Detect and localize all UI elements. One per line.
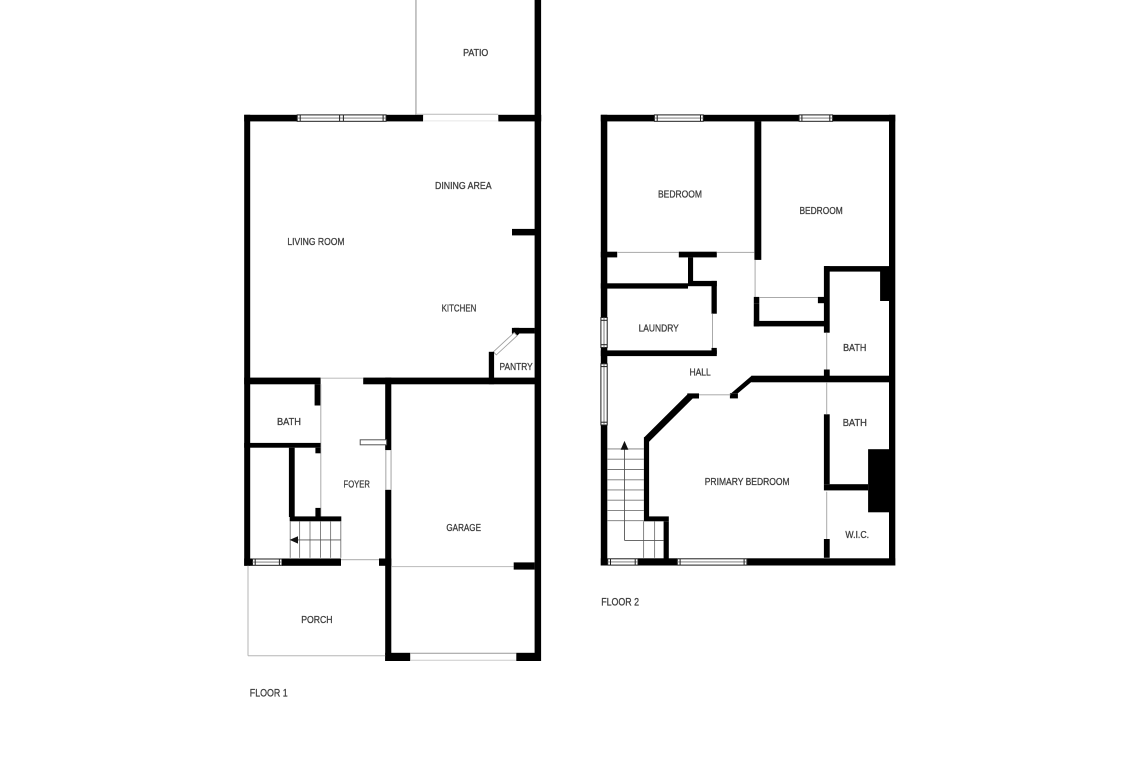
svg-text:BATH: BATH (843, 418, 867, 429)
svg-text:W.I.C.: W.I.C. (845, 530, 869, 541)
svg-text:GARAGE: GARAGE (446, 523, 481, 534)
svg-text:LIVING ROOM: LIVING ROOM (287, 237, 344, 248)
svg-text:DINING AREA: DINING AREA (435, 181, 492, 192)
svg-text:HALL: HALL (689, 368, 711, 379)
svg-text:BEDROOM: BEDROOM (799, 206, 842, 217)
svg-text:PORCH: PORCH (301, 615, 332, 626)
svg-text:PRIMARY BEDROOM: PRIMARY BEDROOM (705, 477, 790, 488)
svg-text:FLOOR 1: FLOOR 1 (250, 688, 288, 700)
svg-text:FOYER: FOYER (344, 480, 370, 491)
svg-text:FLOOR 2: FLOOR 2 (601, 597, 639, 609)
svg-text:BATH: BATH (277, 417, 301, 428)
svg-text:BATH: BATH (843, 343, 866, 354)
svg-text:PATIO: PATIO (463, 48, 488, 59)
svg-text:KITCHEN: KITCHEN (442, 304, 477, 315)
svg-text:BEDROOM: BEDROOM (658, 190, 702, 201)
svg-text:LAUNDRY: LAUNDRY (639, 323, 679, 334)
svg-text:PANTRY: PANTRY (500, 362, 533, 373)
